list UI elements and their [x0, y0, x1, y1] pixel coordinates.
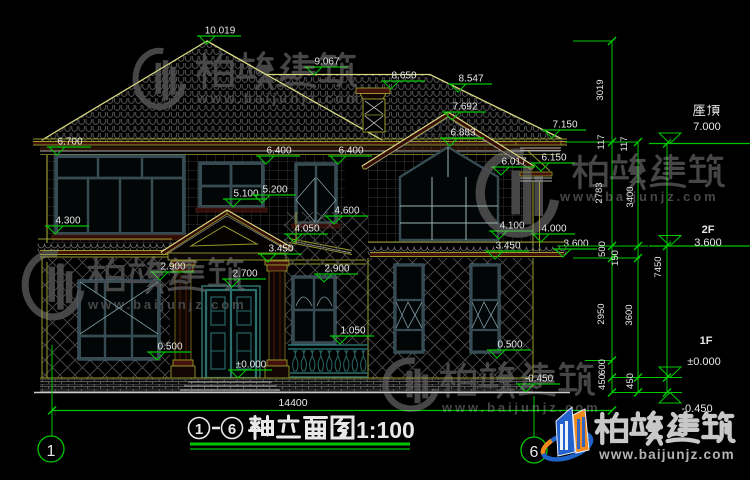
svg-text:7.150: 7.150 — [552, 120, 577, 131]
svg-text:www.baijunjz.com: www.baijunjz.com — [87, 297, 247, 312]
svg-text:450: 450 — [625, 373, 636, 389]
svg-text:1.050: 1.050 — [340, 326, 365, 337]
svg-text:4.600: 4.600 — [334, 206, 359, 217]
svg-text:6.400: 6.400 — [266, 146, 291, 157]
svg-text:600: 600 — [597, 359, 608, 375]
svg-text:10.019: 10.019 — [205, 26, 236, 37]
svg-text:117: 117 — [619, 136, 630, 151]
svg-text:2950: 2950 — [596, 303, 607, 324]
svg-text:5.200: 5.200 — [262, 185, 287, 196]
svg-text:150: 150 — [610, 250, 621, 266]
svg-text:3.600: 3.600 — [694, 237, 722, 249]
svg-text:6.883: 6.883 — [450, 128, 475, 139]
svg-text:4.050: 4.050 — [294, 224, 319, 235]
svg-text:6: 6 — [530, 444, 539, 461]
svg-text:6.700: 6.700 — [57, 137, 82, 148]
svg-text:www.baijunjz.com: www.baijunjz.com — [196, 91, 362, 106]
svg-text:www.baijunjz.com: www.baijunjz.com — [559, 189, 719, 204]
svg-text:500: 500 — [597, 241, 608, 257]
svg-text:±0.000: ±0.000 — [236, 360, 267, 371]
svg-text:4.300: 4.300 — [55, 216, 80, 227]
svg-text:117: 117 — [596, 134, 607, 149]
svg-text:1: 1 — [195, 421, 203, 438]
svg-text:3600: 3600 — [624, 304, 635, 325]
svg-text:6: 6 — [228, 421, 236, 438]
svg-text:6.400: 6.400 — [338, 146, 363, 157]
svg-text:14400: 14400 — [278, 397, 307, 409]
svg-text:8.650: 8.650 — [391, 71, 416, 82]
svg-text:2.900: 2.900 — [324, 264, 349, 275]
svg-text:2F: 2F — [702, 224, 715, 236]
svg-text:7.000: 7.000 — [693, 121, 721, 133]
svg-text:6.150: 6.150 — [541, 153, 566, 164]
svg-text:8.547: 8.547 — [458, 74, 483, 85]
svg-text:3.600: 3.600 — [563, 239, 588, 250]
svg-text:0.500: 0.500 — [157, 342, 182, 353]
svg-text:1F: 1F — [700, 335, 713, 347]
svg-text:1: 1 — [47, 443, 56, 460]
svg-text:±0.000: ±0.000 — [687, 356, 721, 368]
svg-text:3019: 3019 — [595, 79, 606, 100]
svg-text:0.500: 0.500 — [497, 340, 522, 351]
svg-text:450: 450 — [597, 374, 608, 390]
svg-text:3.450: 3.450 — [268, 244, 293, 255]
svg-text:7.692: 7.692 — [452, 102, 477, 113]
svg-text:5.100: 5.100 — [233, 189, 258, 200]
svg-text:3.450: 3.450 — [495, 241, 520, 252]
svg-text:1:100: 1:100 — [356, 417, 415, 443]
svg-text:www.baijunjz.com: www.baijunjz.com — [441, 400, 601, 415]
svg-text:7450: 7450 — [653, 256, 664, 277]
svg-text:www.baijunjz.com: www.baijunjz.com — [598, 447, 735, 462]
